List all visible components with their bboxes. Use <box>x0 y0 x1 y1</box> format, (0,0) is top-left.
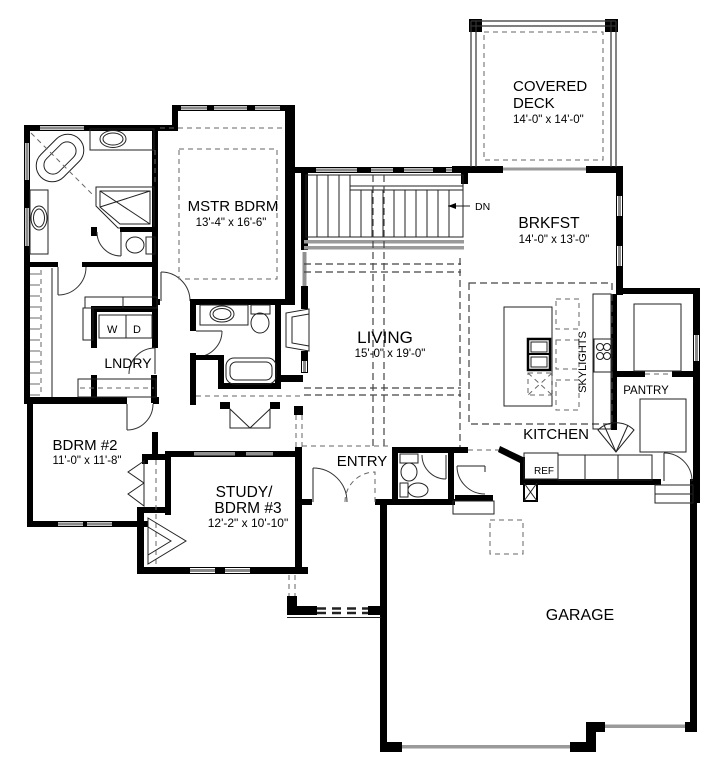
svg-text:PANTRY: PANTRY <box>623 385 669 397</box>
svg-text:DN: DN <box>475 201 490 213</box>
svg-text:14'-0" x 14'-0": 14'-0" x 14'-0" <box>513 114 584 126</box>
svg-text:MSTR BDRM: MSTR BDRM <box>188 198 279 215</box>
svg-text:11'-0" x 11'-8": 11'-0" x 11'-8" <box>52 455 121 467</box>
svg-text:GARAGE: GARAGE <box>546 607 614 624</box>
svg-text:LNDRY: LNDRY <box>104 355 152 371</box>
svg-text:LIVING: LIVING <box>357 328 413 347</box>
svg-text:BDRM #3: BDRM #3 <box>214 500 281 517</box>
svg-text:12'-2" x 10'-10": 12'-2" x 10'-10" <box>208 516 288 530</box>
svg-text:STUDY/: STUDY/ <box>216 484 274 501</box>
svg-text:BRKFST: BRKFST <box>518 215 580 232</box>
svg-text:14'-0" x 13'-0": 14'-0" x 13'-0" <box>519 234 590 246</box>
svg-text:COVERED: COVERED <box>513 78 587 95</box>
svg-text:BDRM #2: BDRM #2 <box>52 437 117 454</box>
svg-text:15'-0" x 19'-0": 15'-0" x 19'-0" <box>355 348 426 360</box>
svg-text:REF: REF <box>534 466 554 477</box>
svg-text:ENTRY: ENTRY <box>337 453 388 470</box>
svg-text:13'-4" x 16'-6": 13'-4" x 16'-6" <box>196 217 267 229</box>
svg-text:SKYLIGHTS: SKYLIGHTS <box>577 331 589 393</box>
svg-text:W: W <box>107 324 118 336</box>
svg-text:DECK: DECK <box>513 95 555 112</box>
svg-text:D: D <box>133 324 141 336</box>
svg-text:KITCHEN: KITCHEN <box>523 426 589 443</box>
